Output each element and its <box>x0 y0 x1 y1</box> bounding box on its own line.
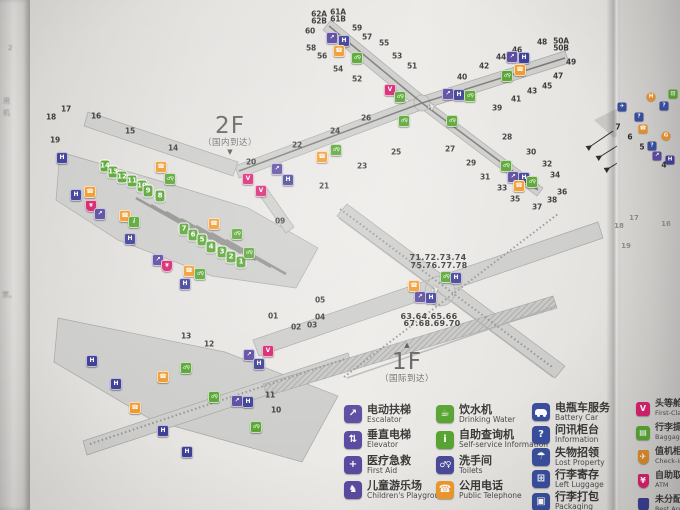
phone-icon: ☎ <box>129 402 141 414</box>
gate-label: 35 <box>510 195 520 203</box>
gate-label: 44 <box>496 53 506 61</box>
gate-label: 24 <box>330 127 340 135</box>
legend-text: 电动扶梯Escalator <box>367 404 411 424</box>
legend-text: 洗手间Toilets <box>459 455 492 475</box>
toilets-icon: ♂♀ <box>436 456 454 474</box>
mini-map-icon: G <box>662 132 671 141</box>
gate-label: 21 <box>319 182 329 190</box>
legend-label-en: Packaging <box>555 503 599 510</box>
stand-label: 04 <box>315 313 325 321</box>
gate-label: 38 <box>547 196 557 204</box>
v-icon: V <box>255 185 267 197</box>
legend-item: ?问讯柜台Information <box>532 424 610 444</box>
toilet-icon: ♂♀ <box>231 228 243 240</box>
elevator-icon: H <box>253 358 265 370</box>
mini-map-icon: ? <box>660 102 669 111</box>
stand-label: 05 <box>315 296 325 304</box>
first-aid-icon: + <box>344 456 362 474</box>
gate-label: 62B <box>311 17 327 25</box>
toilet-icon: ♂♀ <box>208 391 220 403</box>
phone-icon: ☎ <box>84 186 96 198</box>
stand-label: 11 <box>265 391 275 399</box>
mini-map-icon: H <box>666 156 675 165</box>
gate-label: 28 <box>502 133 512 141</box>
phone-icon: ☎ <box>514 64 526 76</box>
legend-label-en: Lost Property <box>555 459 605 467</box>
info-icon: i <box>128 216 140 228</box>
gate-label: 47 <box>553 72 563 80</box>
gate-label: 23 <box>357 162 367 170</box>
toilet-icon: ♂♀ <box>464 90 476 102</box>
legend-text: 医疗急救First Aid <box>367 455 411 475</box>
self-service-info-icon: i <box>436 431 454 449</box>
toilet-icon: ♂♀ <box>501 70 513 82</box>
gate-label: 50B <box>553 44 569 52</box>
gate-label: 56 <box>317 52 327 60</box>
gate-label: 18 <box>46 113 56 121</box>
terminal-gate-label: 8 <box>155 190 166 203</box>
stand-label: 02 <box>291 323 301 331</box>
gate-label: 54 <box>333 65 343 73</box>
phone-icon: ☎ <box>208 218 220 230</box>
legend-label-zh: 失物招领 <box>555 447 605 459</box>
faint-gate-label: 16 <box>661 220 671 228</box>
gate-label: 43 <box>527 87 537 95</box>
legend-label-en: Battery Car <box>555 414 610 422</box>
toilet-icon: ♂♀ <box>394 91 406 103</box>
gate-label: 41 <box>511 95 521 103</box>
legend-item: ▣行李打包Packaging <box>532 491 610 510</box>
legend-item: V头等舱或商First-Class/Busi <box>636 400 680 417</box>
gate-label: 25 <box>391 148 401 156</box>
stand-label: 12 <box>204 340 214 348</box>
toilet-icon: ♂♀ <box>164 173 176 185</box>
gate-label: 55 <box>379 39 389 47</box>
legend-text: 垂直电梯Elevator <box>367 429 411 449</box>
legend-text: 行李提取Baggage Cla <box>655 424 680 441</box>
mini-map-icon: ? <box>635 113 644 122</box>
legend-column-right-fold: V头等舱或商First-Class/Busi▤行李提取Baggage Cla✈值… <box>636 400 680 510</box>
legend-text: 失物招领Lost Property <box>555 447 605 467</box>
legend-item: ↗电动扶梯Escalator <box>344 404 449 424</box>
legend-item: ¥自助取款机ATM <box>636 472 680 489</box>
legend-item: ♞儿童游乐场Children's Playground <box>344 480 449 500</box>
gate-label: 42 <box>479 62 489 70</box>
faint-gate-label: 17 <box>629 214 639 222</box>
elevator-icon: H <box>56 152 68 164</box>
legend-label-zh: 洗手间 <box>459 455 492 467</box>
legend-label-zh: 医疗急救 <box>367 455 411 467</box>
legend-label-en: Toilets <box>459 467 492 475</box>
battery-car-icon <box>532 403 550 421</box>
gate-label: 22 <box>292 141 302 149</box>
gate-label: 49 <box>566 58 576 66</box>
gate-label: 27 <box>445 145 455 153</box>
toilet-icon: ♂♀ <box>446 115 458 127</box>
legend-label-en: ATM <box>655 482 680 489</box>
telephone-icon: ☎ <box>436 481 454 499</box>
satellite-gate-label: 75.76.77.78 <box>411 262 468 270</box>
gate-label: 26 <box>361 114 371 122</box>
elevator-icon: H <box>124 233 136 245</box>
stand-label: 03 <box>307 321 317 329</box>
drinking-water-icon: ☕ <box>436 405 454 423</box>
gate-label: 37 <box>532 203 542 211</box>
legend-text: 公用电话Public Telephone <box>459 480 522 500</box>
plane-icon: ✈ <box>426 102 438 114</box>
legend-label-en: Escalator <box>367 416 411 424</box>
elevator-icon: H <box>181 446 193 458</box>
toilet-icon: ♂♀ <box>330 144 342 156</box>
gate-label: 17 <box>61 105 71 113</box>
mini-map-icon: H <box>647 93 656 102</box>
gate-label: 19 <box>50 136 60 144</box>
elevator-icon: H <box>110 378 122 390</box>
elevator-icon: H <box>242 396 254 408</box>
legend-item: +医疗急救First Aid <box>344 455 449 475</box>
mini-map-icon: ✈ <box>618 103 627 112</box>
legend-text: 行李寄存Left Luggage <box>555 469 604 489</box>
terminal-gate-label: 9 <box>143 185 154 198</box>
elevator-icon: ⇅ <box>344 431 362 449</box>
baggage-claim-icon: ▤ <box>636 426 650 440</box>
gate-label: 16 <box>91 112 101 120</box>
legend-text: 未分配登机Rest Area for <box>655 496 680 510</box>
legend-text: 电瓶车服务Battery Car <box>555 402 610 422</box>
legend-text: 自助取款机ATM <box>655 472 680 489</box>
gate-arrow-number: 6 <box>627 133 632 142</box>
toilet-icon: ♂♀ <box>194 268 206 280</box>
legend-label-en: Left Luggage <box>555 481 604 489</box>
toilet-icon: ♂♀ <box>351 52 363 64</box>
elevator-icon: H <box>179 278 191 290</box>
legend-item: ☂失物招领Lost Property <box>532 447 610 467</box>
legend-text: 值机柜台Check-in Co <box>655 448 680 465</box>
elevator-icon: H <box>518 52 530 64</box>
legend-item: ✈值机柜台Check-in Co <box>636 448 680 465</box>
plane-icon: ✈ <box>430 285 442 297</box>
gate-label: 61B <box>330 15 346 23</box>
toilet-icon: ♂♀ <box>243 247 255 259</box>
satellite-gate-label: 67.68.69.70 <box>404 320 461 328</box>
toilet-icon: ♂♀ <box>180 362 192 374</box>
phone-icon: ☎ <box>157 371 169 383</box>
gate-label: 29 <box>466 159 476 167</box>
legend-column-1: ↗电动扶梯Escalator⇅垂直电梯Elevator+医疗急救First Ai… <box>344 404 449 500</box>
legend-item: 未分配登机Rest Area for <box>636 496 680 510</box>
gate-label: 45 <box>542 82 552 90</box>
phone-icon: ☎ <box>316 151 328 163</box>
legend-label-en: Baggage Cla <box>655 434 680 441</box>
playground-icon: ♞ <box>344 481 362 499</box>
gate-label: 33 <box>497 184 507 192</box>
legend-item: ▤行李提取Baggage Cla <box>636 424 680 441</box>
mini-map-icon: ☎ <box>639 125 648 134</box>
rest-area-icon <box>638 498 649 510</box>
gate-label: 48 <box>537 38 547 46</box>
gate-label: 36 <box>557 188 567 196</box>
v-badge-icon: V <box>636 402 650 416</box>
gate-label: 59 <box>352 24 362 32</box>
escalator-icon: ↗ <box>506 51 518 63</box>
stand-label: 10 <box>271 406 281 414</box>
terminal-map-photo: 2用机票。 <box>0 0 680 510</box>
information-icon: ? <box>532 426 550 444</box>
toilet-icon: ♂♀ <box>526 176 538 188</box>
gate-label: 58 <box>306 44 316 52</box>
legend-label-en: Rest Area for <box>655 506 680 510</box>
packaging-icon: ▣ <box>532 493 550 510</box>
elevator-icon: H <box>450 272 462 284</box>
escalator-icon: ↗ <box>271 163 283 175</box>
v-icon: V <box>262 345 274 357</box>
elevator-icon: H <box>282 174 294 186</box>
legend-label-en: First Aid <box>367 467 411 475</box>
legend-text: 头等舱或商First-Class/Busi <box>655 400 680 417</box>
legend-text: 行李打包Packaging <box>555 491 599 510</box>
legend-column-3: 电瓶车服务Battery Car?问讯柜台Information☂失物招领Los… <box>532 402 610 510</box>
gate-label: 14 <box>168 144 178 152</box>
stand-label: 13 <box>181 332 191 340</box>
gate-label: 15 <box>125 127 135 135</box>
legend-item: 电瓶车服务Battery Car <box>532 402 610 422</box>
elevator-icon: H <box>157 425 169 437</box>
gate-label: 51 <box>407 62 417 70</box>
gate-arrow-number: 5 <box>639 143 644 152</box>
left-luggage-icon: ⊞ <box>532 470 550 488</box>
faint-gate-label: 18 <box>614 222 624 230</box>
legend-label-en: Information <box>555 436 599 444</box>
gate-label: 09 <box>275 217 285 225</box>
terminal-gate-label: 4 <box>206 241 217 254</box>
toilet-icon: ♂♀ <box>398 115 410 127</box>
gate-label: 60 <box>305 27 315 35</box>
legend-label-en: First-Class/Busi <box>655 410 680 417</box>
escalator-icon: ↗ <box>94 208 106 220</box>
stand-label: 01 <box>268 312 278 320</box>
gate-label: 53 <box>392 52 402 60</box>
legend-label-en: Elevator <box>367 441 411 449</box>
gate-label: 40 <box>457 73 467 81</box>
atm-icon: ¥ <box>161 260 173 272</box>
escalator-icon: ↗ <box>326 32 338 44</box>
elevator-icon: H <box>70 189 82 201</box>
phone-icon: ☎ <box>155 161 167 173</box>
legend-label-en: Drinking Water <box>459 416 515 424</box>
legend-label-en: Public Telephone <box>459 492 522 500</box>
gate-arrow-number: 7 <box>615 123 620 132</box>
gate-label: 34 <box>550 171 560 179</box>
v-icon: V <box>242 173 254 185</box>
elevator-icon: H <box>86 355 98 367</box>
gate-label: 31 <box>480 173 490 181</box>
legend-label-en: Check-in Co <box>655 458 680 465</box>
gate-label: 32 <box>542 160 552 168</box>
gate-label: 57 <box>362 33 372 41</box>
gate-label: 30 <box>526 148 536 156</box>
legend-text: 饮水机Drinking Water <box>459 404 515 424</box>
lost-property-icon: ☂ <box>532 448 550 466</box>
mini-map-icon: ▥ <box>669 90 678 99</box>
atm-icon: ¥ <box>638 474 649 488</box>
toilet-icon: ♂♀ <box>250 421 262 433</box>
gate-label: 52 <box>352 75 362 83</box>
faint-gate-label: 19 <box>621 242 631 250</box>
gate-label: 39 <box>492 104 502 112</box>
phone-icon: ☎ <box>513 180 525 192</box>
legend-item: ⊞行李寄存Left Luggage <box>532 469 610 489</box>
mini-map-icon: ↗ <box>653 152 662 161</box>
phone-icon: ☎ <box>333 45 345 57</box>
escalator-icon: ↗ <box>344 405 362 423</box>
mini-map-icon: ? <box>648 142 657 151</box>
gate-label: 20 <box>246 158 256 166</box>
legend-item: ⇅垂直电梯Elevator <box>344 429 449 449</box>
legend-text: 问讯柜台Information <box>555 424 599 444</box>
check-in-icon: ✈ <box>638 450 649 464</box>
